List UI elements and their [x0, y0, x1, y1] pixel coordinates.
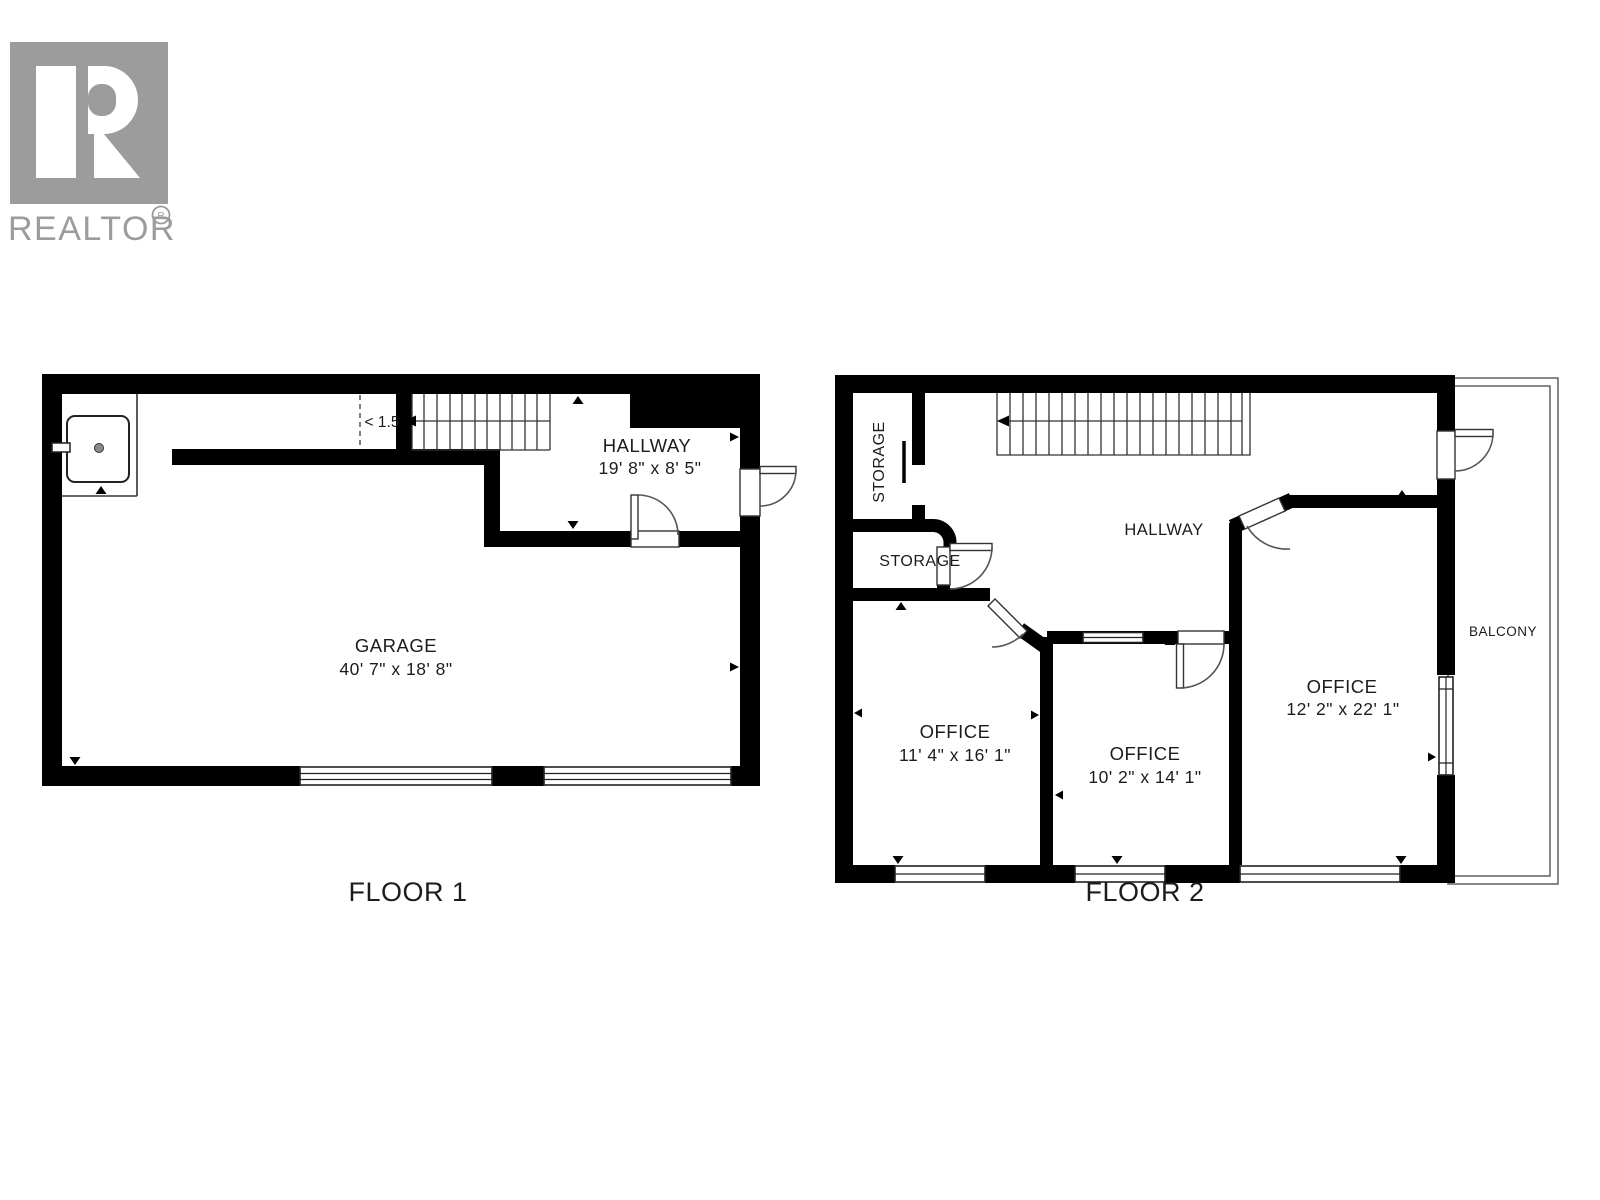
- marker-arrow-right-icon: [730, 433, 739, 442]
- wall-segment: [492, 766, 544, 786]
- door-leaf: [760, 467, 796, 474]
- realtor-logo-text: REALTOR: [8, 210, 176, 248]
- floorplan-page: REALTOR R: [0, 0, 1600, 1200]
- floor2-interior-walls: [1020, 495, 1455, 865]
- utility-alcove: [52, 394, 137, 496]
- wall-segment: [842, 588, 990, 601]
- wall-segment: [835, 375, 853, 883]
- wall-segment: [1290, 495, 1455, 508]
- door-threshold: [1437, 431, 1455, 479]
- marker-arrow-down-icon: [568, 521, 579, 529]
- marker-arrow-up-icon: [96, 486, 107, 494]
- fixture-knob-icon: [95, 444, 104, 453]
- room-label-garage: GARAGE: [355, 635, 437, 656]
- door-leaf: [950, 544, 992, 551]
- registered-trademark-letter: R: [157, 211, 164, 222]
- marker-arrow-down-icon: [1396, 856, 1407, 864]
- marker-arrow-right-icon: [730, 663, 739, 672]
- floor1-plan: < 1.5 GARAGE: [42, 374, 796, 907]
- marker-arrow-right-icon: [1428, 753, 1436, 762]
- wall-segment: [678, 531, 742, 547]
- door-swing-arc: [1247, 526, 1290, 549]
- realtor-logo-r-stem: [36, 66, 76, 178]
- stairs-floor2: [997, 393, 1250, 455]
- marker-arrow-up-icon: [1397, 490, 1408, 498]
- wall-segment: [42, 374, 760, 394]
- door-leaf: [988, 599, 1027, 638]
- floorplan-drawing: REALTOR R: [0, 0, 1600, 1200]
- room-dim-hallway-f1: 19' 8" x 8' 5": [599, 458, 702, 478]
- wall-segment: [1400, 865, 1455, 883]
- marker-arrow-left-icon: [1055, 791, 1063, 800]
- room-label-hallway-f1: HALLWAY: [603, 435, 691, 456]
- room-label-storage: STORAGE: [879, 553, 960, 570]
- floor2-label: FLOOR 2: [1085, 877, 1204, 907]
- marker-arrow-up-icon: [573, 396, 584, 404]
- marker-arrow-down-icon: [70, 757, 81, 765]
- room-label-balcony: BALCONY: [1469, 624, 1537, 639]
- wall-segment: [484, 531, 632, 547]
- wall-segment: [740, 374, 760, 470]
- marker-arrow-up-icon: [896, 602, 907, 610]
- garage-door: [544, 767, 731, 785]
- office-left-door: [988, 599, 1027, 647]
- floor2-plan: STORAGE STORAGE HALLWAY OFFICE 11' 4" x …: [835, 375, 1558, 907]
- room-dim-office-middle: 10' 2" x 14' 1": [1088, 767, 1201, 787]
- hallway-interior-door: [631, 495, 679, 547]
- wall-segment: [912, 393, 925, 465]
- wall-segment: [731, 766, 760, 786]
- door-leaf: [1177, 644, 1184, 688]
- door-swing-arc: [1180, 644, 1224, 688]
- wall-segment: [835, 375, 1455, 393]
- fixture-handle-icon: [52, 443, 70, 452]
- stair-treads: [1010, 393, 1231, 455]
- door-leaf: [1455, 430, 1493, 437]
- balcony-door: [1437, 430, 1493, 480]
- stair-direction-arrow-icon: [997, 416, 1009, 427]
- door-swing-arc: [1455, 433, 1493, 471]
- marker-arrow-right-icon: [1031, 711, 1039, 720]
- headroom-annotation: < 1.5: [365, 414, 400, 431]
- storage-closet: [904, 393, 925, 531]
- room-dim-office-right: 12' 2" x 22' 1": [1286, 699, 1399, 719]
- wall-segment: [1437, 393, 1455, 432]
- wall-segment: [740, 516, 760, 786]
- wall-segment: [835, 865, 895, 883]
- wall-segment: [985, 865, 1075, 883]
- marker-arrow-down-icon: [1112, 856, 1123, 864]
- room-dim-garage: 40' 7" x 18' 8": [339, 659, 452, 679]
- wall-block: [630, 394, 742, 428]
- floor2-exterior-walls: [835, 375, 1455, 883]
- door-leaf: [631, 495, 638, 539]
- door-threshold: [1178, 631, 1224, 644]
- floor1-label: FLOOR 1: [348, 877, 467, 907]
- room-label-storage-closet: STORAGE: [871, 421, 888, 502]
- stair-outline: [997, 393, 1250, 455]
- room-label-hallway-f2: HALLWAY: [1124, 521, 1203, 539]
- wall-segment: [1040, 637, 1053, 865]
- room-label-office-left: OFFICE: [920, 721, 991, 742]
- wall-segment: [42, 374, 62, 786]
- door-leaf: [1239, 498, 1285, 529]
- door-threshold: [740, 469, 760, 516]
- realtor-logo: REALTOR R: [8, 42, 176, 248]
- room-dim-office-left: 11' 4" x 16' 1": [899, 745, 1011, 765]
- stairs-floor1: [404, 394, 550, 450]
- door-swing-arc: [760, 470, 796, 506]
- marker-arrow-left-icon: [854, 709, 862, 718]
- wall-segment: [1437, 775, 1455, 865]
- wall-segment: [42, 766, 300, 786]
- office-right-door: [1239, 498, 1290, 549]
- stair-treads: [412, 394, 550, 450]
- hallway-exterior-door: [740, 467, 796, 517]
- door-swing-arc: [638, 495, 678, 535]
- room-label-office-middle: OFFICE: [1110, 743, 1181, 764]
- garage-door: [300, 767, 492, 785]
- room-label-office-right: OFFICE: [1307, 676, 1378, 697]
- wall-segment: [842, 526, 950, 548]
- wall-segment: [1229, 523, 1242, 865]
- marker-arrow-down-icon: [893, 856, 904, 864]
- realtor-logo-r-counter: [88, 84, 116, 116]
- wall-segment: [172, 449, 500, 465]
